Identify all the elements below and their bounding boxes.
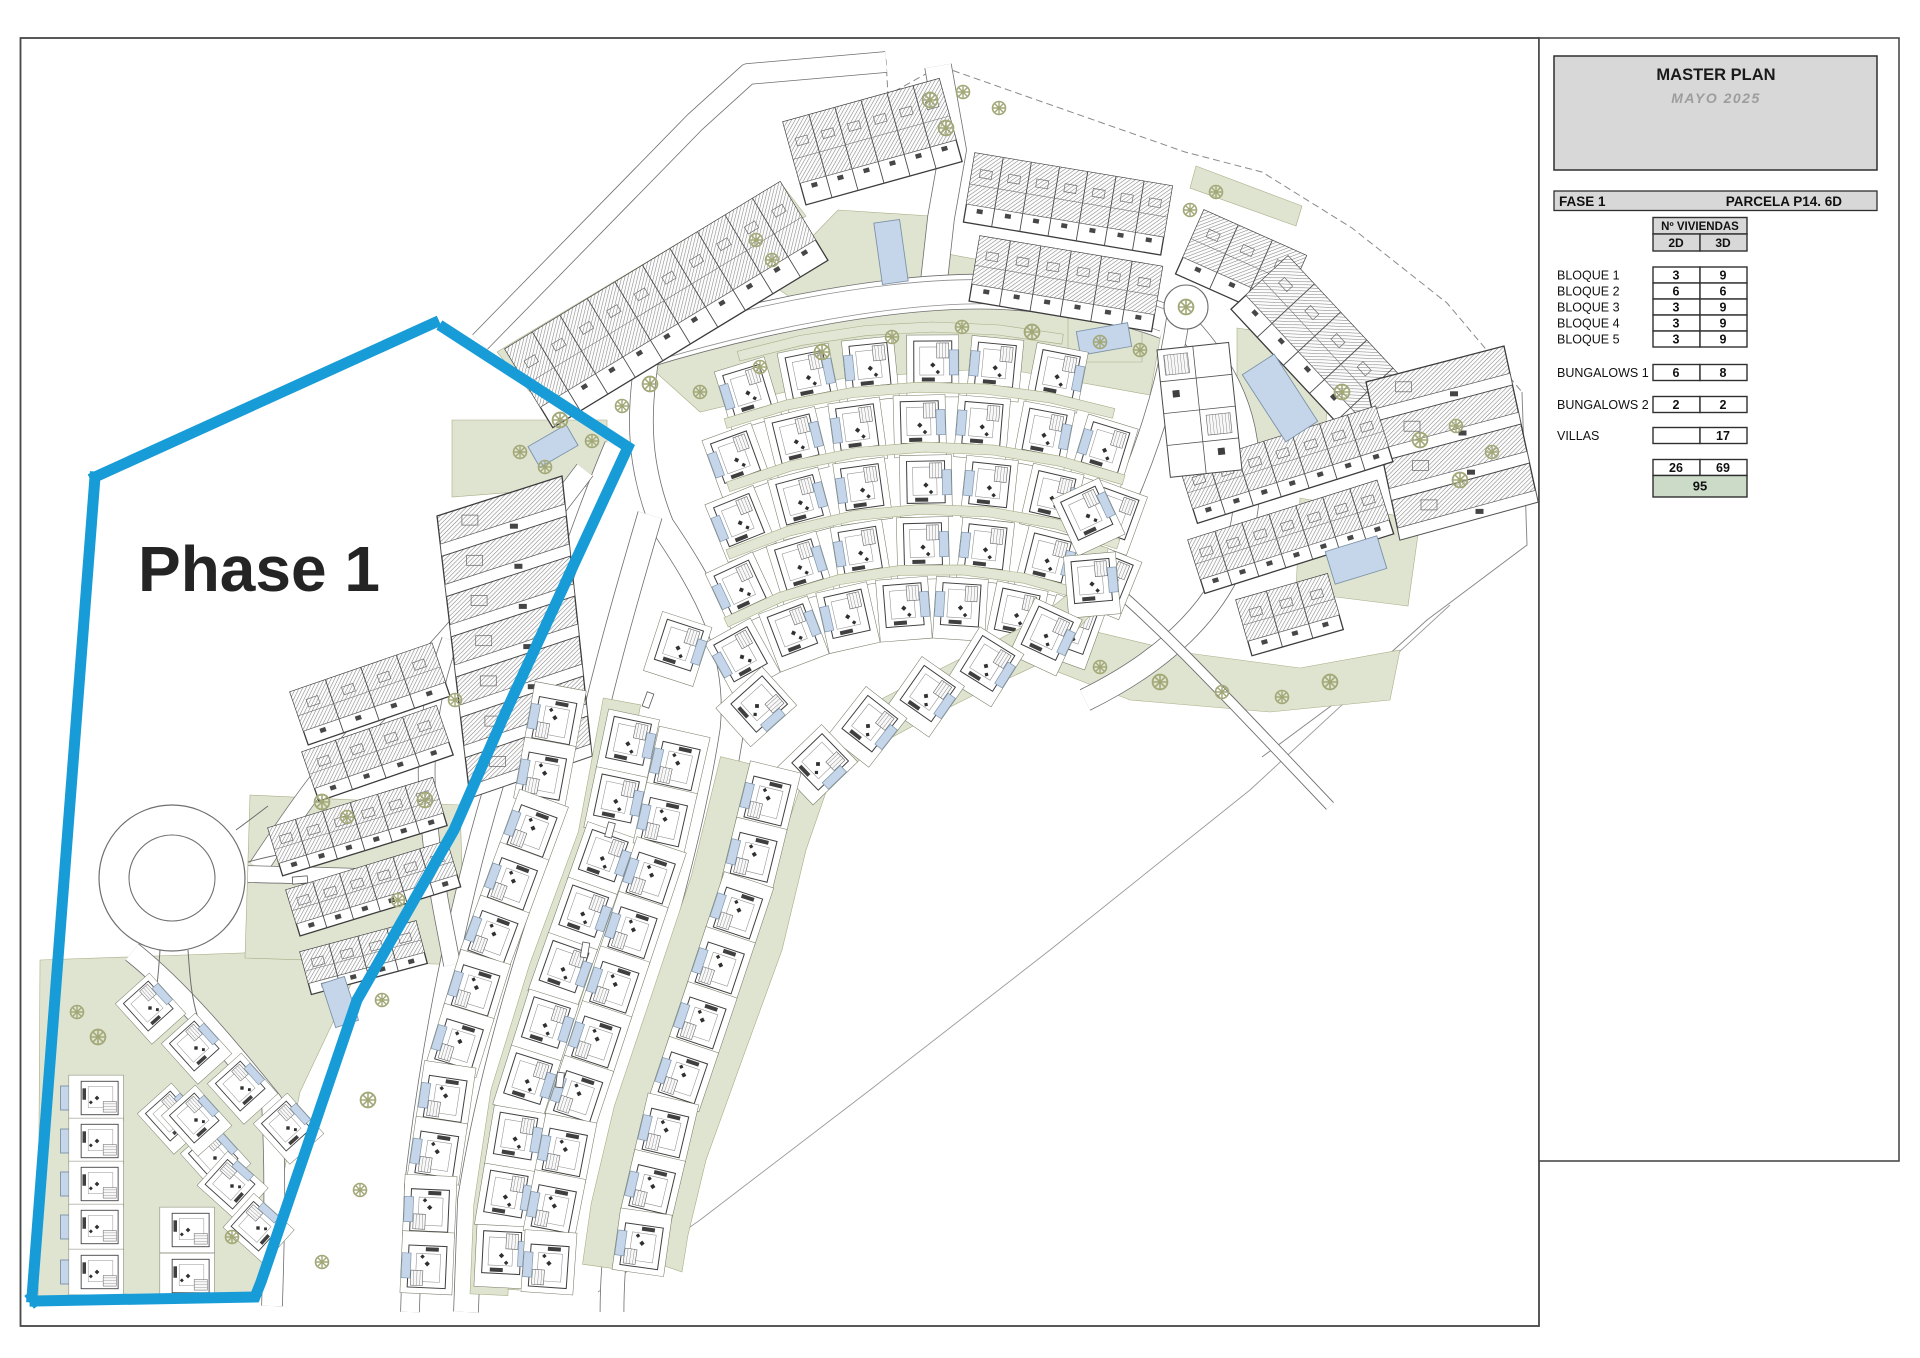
svg-text:69: 69 (1716, 461, 1730, 475)
svg-text:BLOQUE 3: BLOQUE 3 (1557, 301, 1620, 315)
svg-text:2: 2 (1720, 398, 1727, 412)
svg-text:8: 8 (1720, 366, 1727, 380)
svg-text:26: 26 (1669, 461, 1683, 475)
svg-text:95: 95 (1693, 479, 1707, 494)
svg-text:Nº VIVIENDAS: Nº VIVIENDAS (1661, 221, 1739, 233)
svg-text:2: 2 (1673, 398, 1680, 412)
svg-text:17: 17 (1716, 429, 1730, 443)
svg-text:6: 6 (1673, 285, 1680, 299)
svg-text:BLOQUE 2: BLOQUE 2 (1557, 285, 1620, 299)
svg-text:9: 9 (1720, 269, 1727, 283)
svg-text:MAYO 2025: MAYO 2025 (1671, 90, 1761, 106)
svg-text:BLOQUE 5: BLOQUE 5 (1557, 333, 1620, 347)
svg-text:VILLAS: VILLAS (1557, 429, 1599, 443)
svg-text:3D: 3D (1715, 236, 1731, 250)
svg-text:9: 9 (1720, 301, 1727, 315)
svg-text:BUNGALOWS 2: BUNGALOWS 2 (1557, 398, 1649, 412)
svg-text:9: 9 (1720, 317, 1727, 331)
svg-text:3: 3 (1673, 301, 1680, 315)
svg-text:PARCELA P14. 6D: PARCELA P14. 6D (1726, 194, 1843, 209)
svg-text:6: 6 (1673, 366, 1680, 380)
svg-text:3: 3 (1673, 269, 1680, 283)
svg-text:BLOQUE 1: BLOQUE 1 (1557, 269, 1620, 283)
svg-text:9: 9 (1720, 333, 1727, 347)
svg-text:3: 3 (1673, 317, 1680, 331)
svg-text:3: 3 (1673, 333, 1680, 347)
svg-text:FASE 1: FASE 1 (1559, 194, 1606, 209)
svg-text:BLOQUE 4: BLOQUE 4 (1557, 317, 1620, 331)
svg-text:Phase 1: Phase 1 (138, 533, 380, 605)
svg-text:6: 6 (1720, 285, 1727, 299)
svg-text:MASTER PLAN: MASTER PLAN (1656, 66, 1775, 84)
svg-text:2D: 2D (1668, 236, 1684, 250)
svg-text:BUNGALOWS 1: BUNGALOWS 1 (1557, 366, 1649, 380)
